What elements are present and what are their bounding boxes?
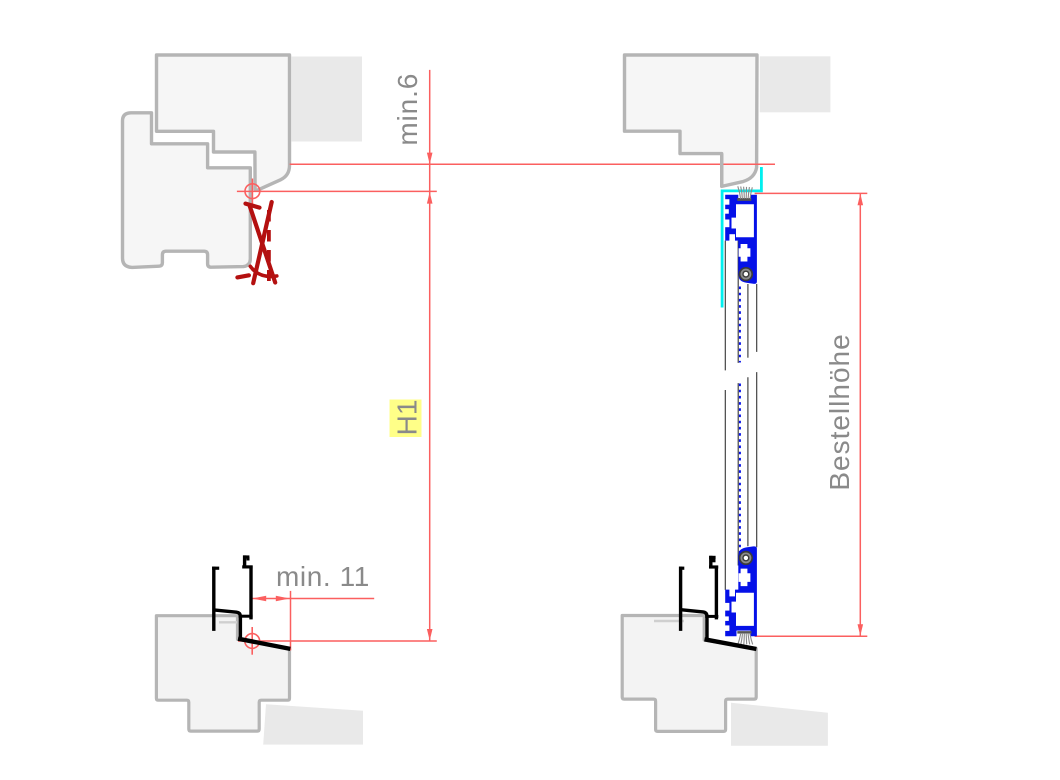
svg-text:Bestellhöhe: Bestellhöhe <box>824 333 855 490</box>
svg-text:min.6: min.6 <box>392 73 423 146</box>
svg-text:min. 11: min. 11 <box>276 561 370 592</box>
svg-text:H1: H1 <box>391 400 422 436</box>
